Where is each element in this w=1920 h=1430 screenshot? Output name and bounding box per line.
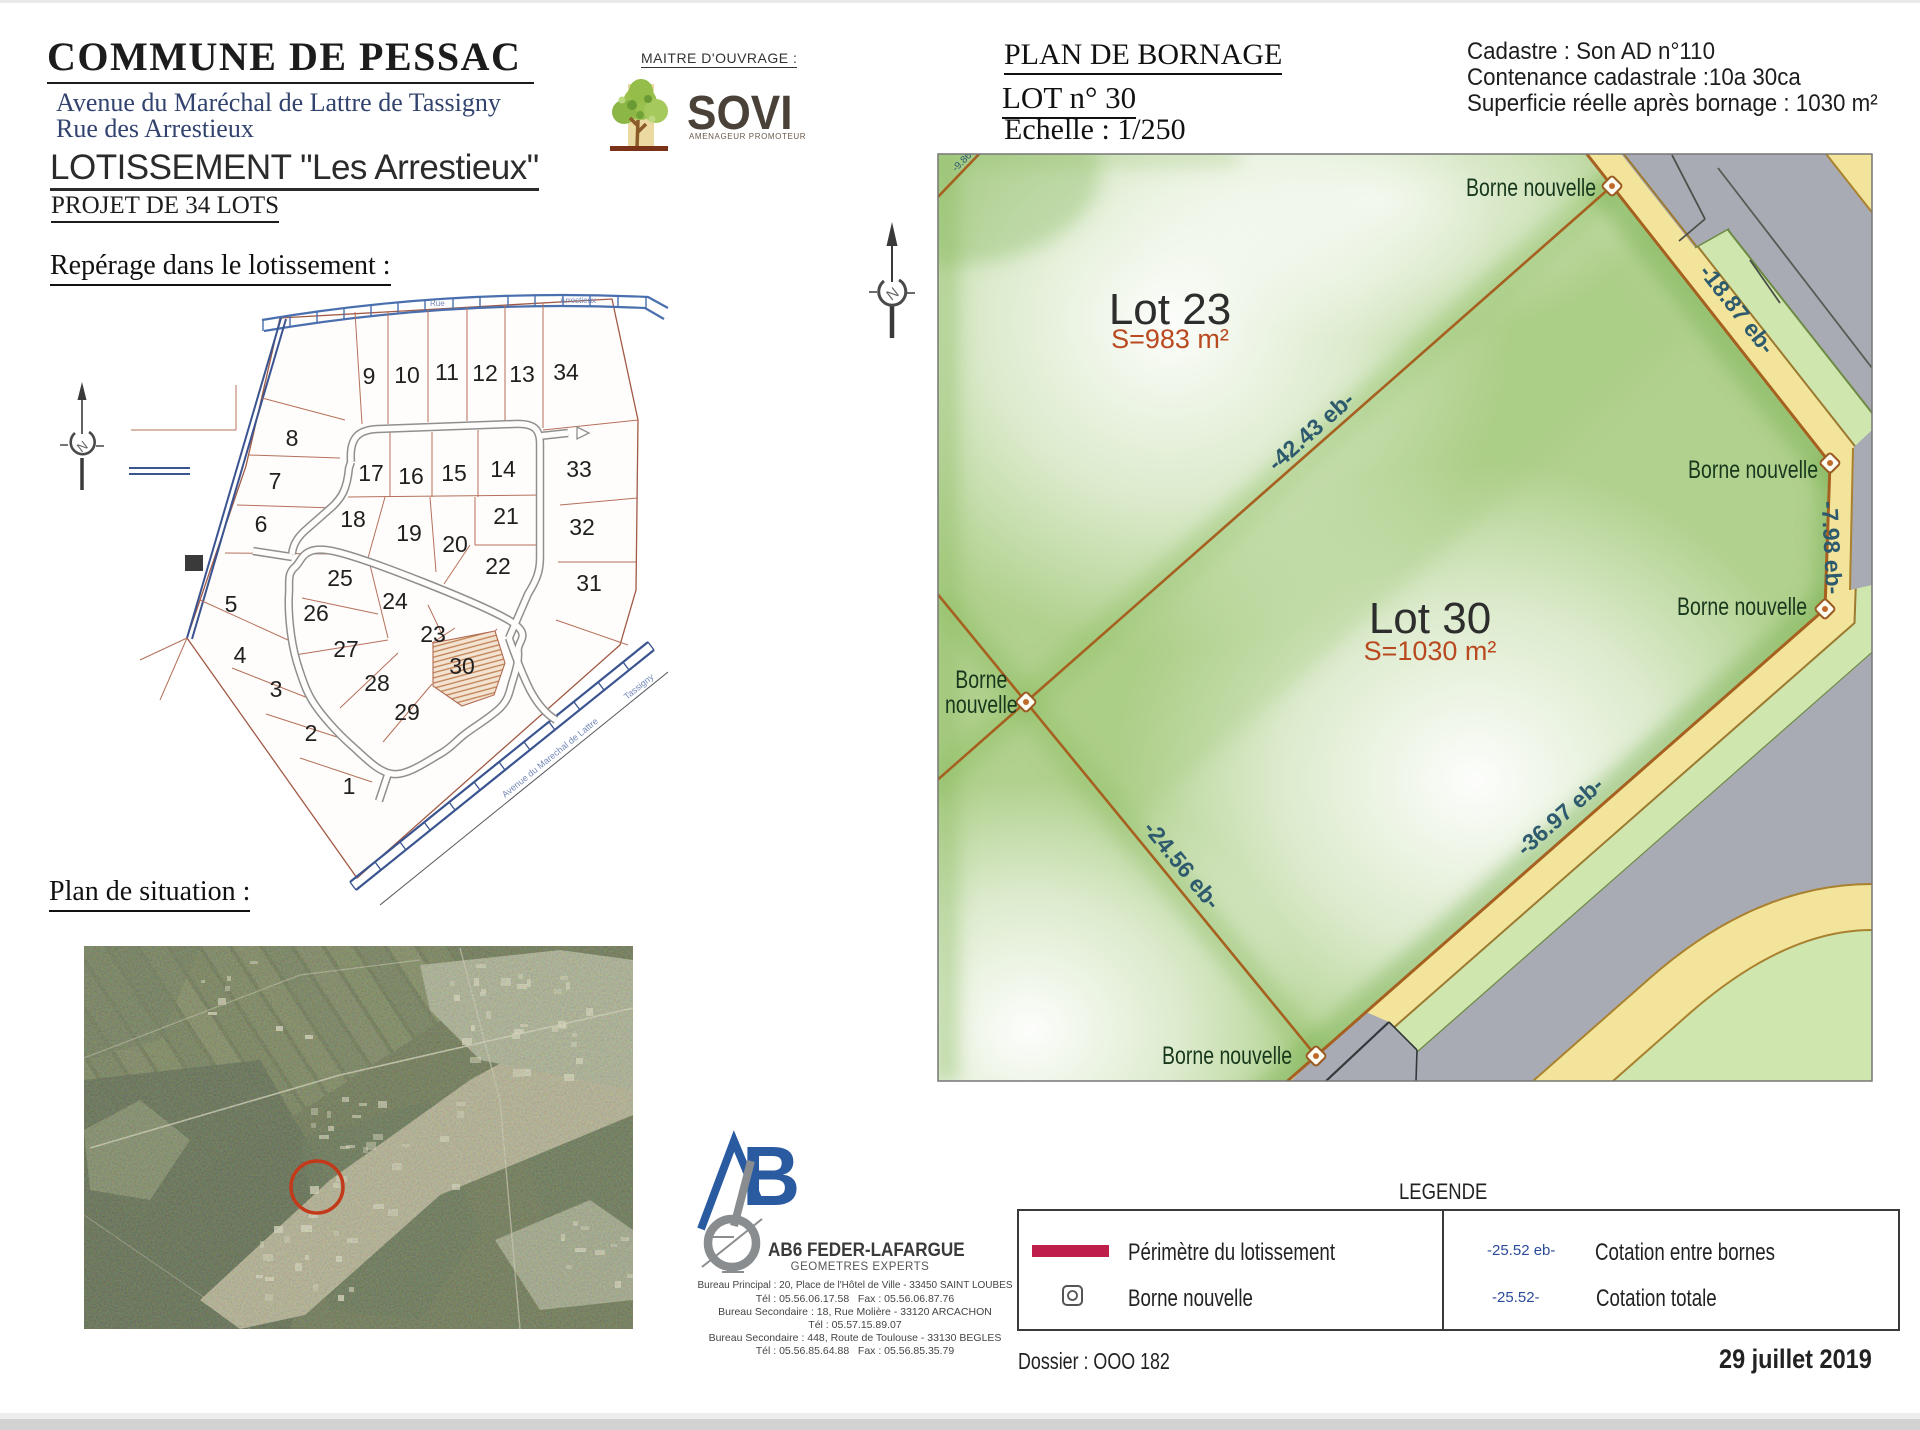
svg-text:25: 25 <box>327 565 353 591</box>
svg-text:32: 32 <box>569 514 595 540</box>
svg-text:18: 18 <box>340 506 366 532</box>
svg-text:4: 4 <box>234 642 247 668</box>
svg-text:28: 28 <box>364 670 390 696</box>
svg-text:23: 23 <box>420 621 446 647</box>
svg-text:15: 15 <box>441 460 467 486</box>
svg-text:2: 2 <box>305 720 318 746</box>
svg-text:22: 22 <box>485 553 511 579</box>
svg-text:19: 19 <box>396 520 422 546</box>
svg-text:-7.98 eb-: -7.98 eb- <box>1817 500 1848 595</box>
svg-text:Arrestieux: Arrestieux <box>560 296 596 305</box>
svg-text:21: 21 <box>493 503 519 529</box>
svg-text:8: 8 <box>286 425 299 451</box>
svg-text:11: 11 <box>435 359 459 385</box>
svg-text:N: N <box>883 284 902 304</box>
svg-text:27: 27 <box>333 636 359 662</box>
svg-text:33: 33 <box>566 456 592 482</box>
svg-text:12: 12 <box>472 360 498 386</box>
svg-text:1: 1 <box>343 773 356 799</box>
svg-text:24: 24 <box>382 588 408 614</box>
svg-text:6: 6 <box>255 511 268 537</box>
svg-text:Rue: Rue <box>430 299 445 308</box>
svg-text:3: 3 <box>270 676 283 702</box>
svg-text:13: 13 <box>509 361 535 387</box>
svg-text:7: 7 <box>269 468 282 494</box>
svg-text:26: 26 <box>303 600 329 626</box>
svg-text:34: 34 <box>553 359 579 385</box>
svg-text:10: 10 <box>394 362 420 388</box>
svg-text:16: 16 <box>398 463 424 489</box>
svg-text:30: 30 <box>449 653 475 679</box>
svg-text:5: 5 <box>225 591 238 617</box>
svg-text:9: 9 <box>363 363 376 389</box>
svg-text:29: 29 <box>394 699 420 725</box>
svg-text:14: 14 <box>490 456 516 482</box>
svg-text:20: 20 <box>442 531 468 557</box>
svg-text:31: 31 <box>576 570 602 596</box>
svg-text:17: 17 <box>358 460 384 486</box>
